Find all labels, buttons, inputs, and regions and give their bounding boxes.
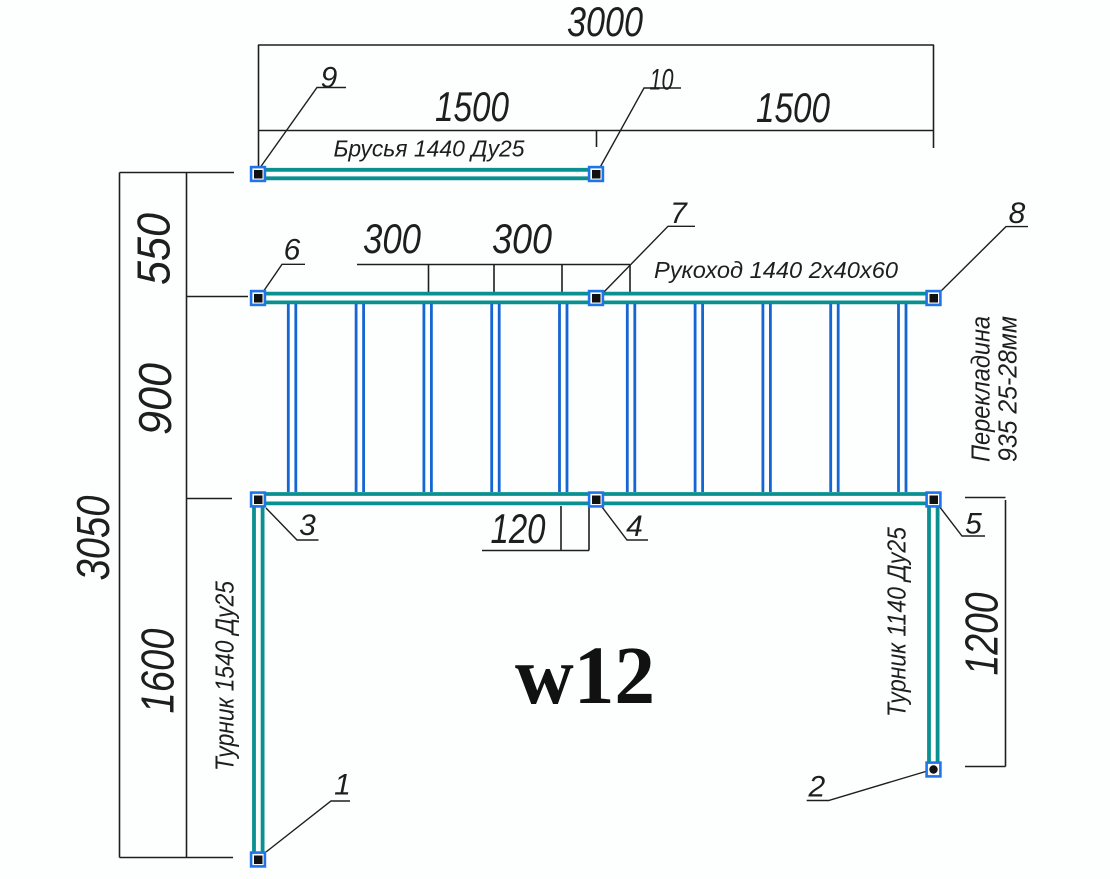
- svg-text:7: 7: [670, 197, 688, 230]
- svg-text:Рукоход 1440 2х40х60: Рукоход 1440 2х40х60: [654, 257, 898, 283]
- svg-text:1200: 1200: [956, 592, 1008, 675]
- svg-text:1500: 1500: [756, 84, 831, 131]
- svg-text:5: 5: [965, 508, 982, 541]
- svg-text:550: 550: [128, 213, 180, 285]
- svg-text:Перекладина: Перекладина: [968, 316, 996, 462]
- svg-text:3050: 3050: [67, 495, 119, 580]
- svg-text:300: 300: [492, 215, 553, 262]
- svg-text:300: 300: [363, 215, 422, 262]
- svg-text:3: 3: [299, 509, 316, 542]
- svg-text:Турник 1540 Ду25: Турник 1540 Ду25: [212, 580, 240, 771]
- svg-text:120: 120: [491, 505, 547, 552]
- svg-text:3000: 3000: [567, 0, 644, 45]
- svg-text:900: 900: [129, 363, 181, 435]
- svg-text:w12: w12: [515, 629, 655, 721]
- svg-text:Брусья 1440 Ду25: Брусья 1440 Ду25: [334, 136, 526, 162]
- svg-text:1600: 1600: [132, 628, 184, 713]
- svg-text:8: 8: [1009, 197, 1026, 230]
- svg-text:10: 10: [650, 64, 674, 97]
- svg-text:9: 9: [321, 62, 338, 95]
- svg-text:935 25-28мм: 935 25-28мм: [995, 316, 1023, 462]
- svg-text:Турник 1140 Ду25: Турник 1140 Ду25: [884, 526, 912, 717]
- svg-text:1500: 1500: [435, 83, 510, 130]
- svg-text:6: 6: [284, 234, 301, 267]
- svg-text:1: 1: [334, 769, 351, 802]
- svg-text:2: 2: [808, 771, 826, 804]
- svg-text:4: 4: [626, 510, 643, 543]
